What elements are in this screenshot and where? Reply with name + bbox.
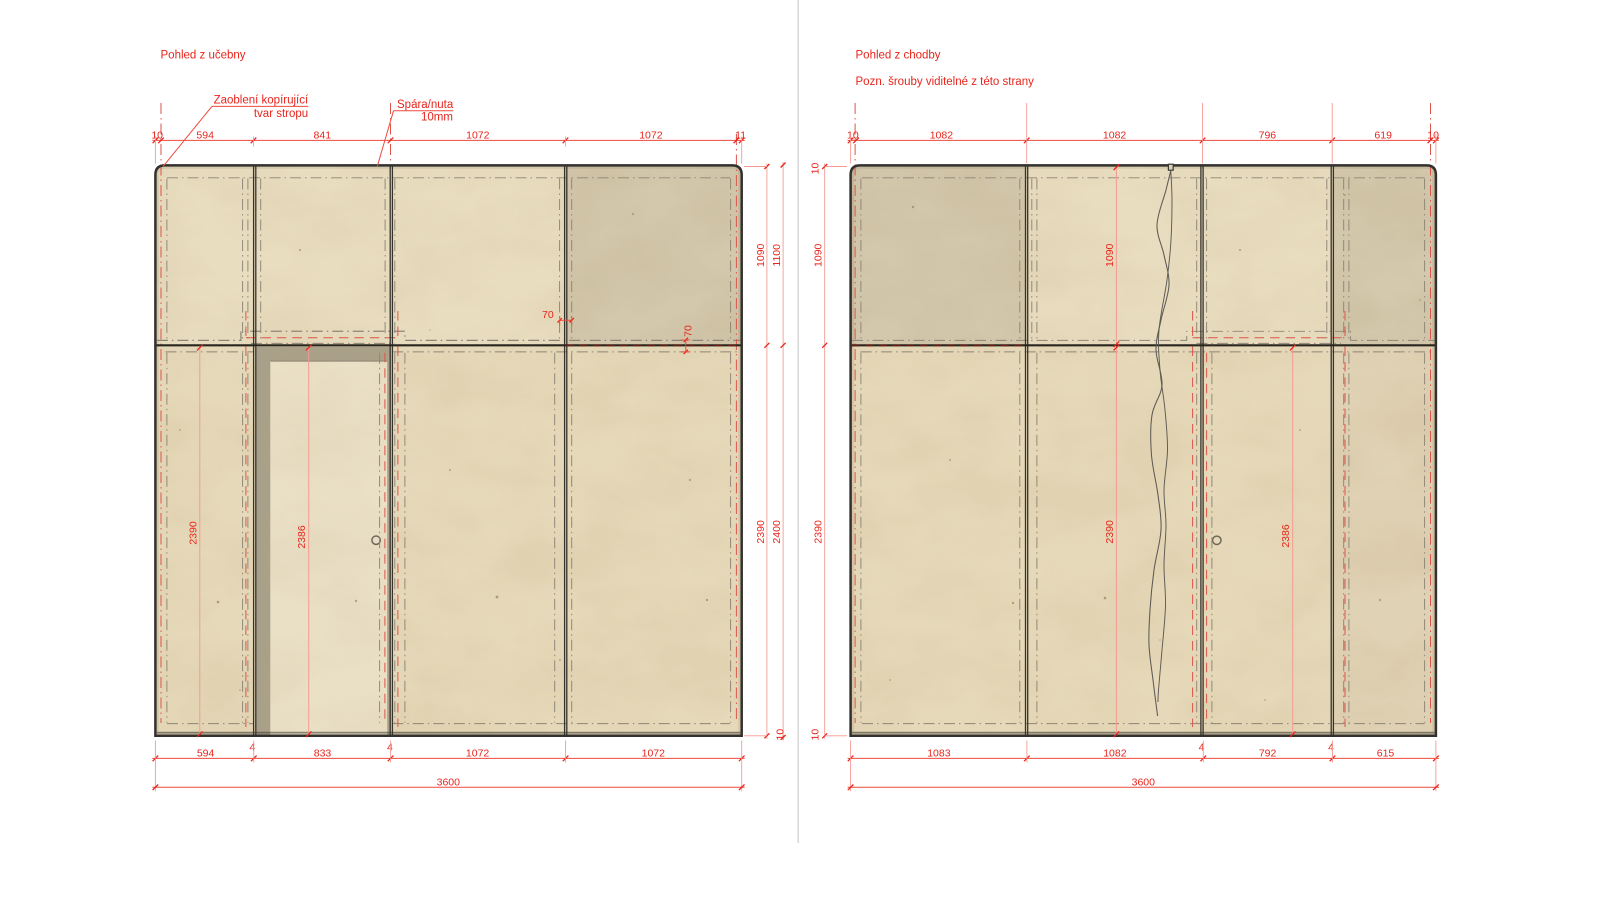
svg-text:1072: 1072: [466, 748, 490, 760]
svg-text:Pohled z učebny: Pohled z učebny: [161, 50, 246, 62]
svg-text:10: 10: [810, 729, 822, 741]
svg-text:2390: 2390: [187, 521, 199, 545]
svg-text:2386: 2386: [296, 525, 308, 549]
svg-text:70: 70: [683, 325, 695, 337]
svg-text:70: 70: [542, 309, 554, 321]
svg-text:1090: 1090: [813, 243, 825, 267]
svg-text:10: 10: [774, 729, 786, 741]
svg-text:2390: 2390: [1104, 520, 1116, 544]
svg-text:Pozn. šrouby viditelné z této: Pozn. šrouby viditelné z této strany: [856, 76, 1035, 88]
svg-text:1082: 1082: [1103, 130, 1127, 142]
svg-text:1072: 1072: [639, 130, 663, 142]
svg-text:2400: 2400: [771, 520, 783, 544]
svg-text:10: 10: [847, 130, 859, 142]
svg-text:3600: 3600: [1132, 777, 1156, 789]
svg-text:1100: 1100: [771, 244, 783, 267]
svg-text:10mm: 10mm: [421, 112, 453, 124]
svg-text:594: 594: [197, 748, 215, 760]
svg-text:tvar stropu: tvar stropu: [254, 108, 308, 120]
svg-text:1072: 1072: [466, 130, 490, 142]
svg-text:Spára/nuta: Spára/nuta: [397, 99, 454, 111]
svg-text:1082: 1082: [930, 130, 954, 142]
svg-text:4: 4: [1328, 742, 1334, 754]
svg-text:594: 594: [196, 130, 214, 142]
svg-text:2390: 2390: [813, 520, 825, 544]
svg-text:10: 10: [810, 163, 822, 175]
svg-text:1090: 1090: [1104, 243, 1116, 267]
svg-text:796: 796: [1259, 130, 1277, 142]
svg-text:Zaoblení kopírující: Zaoblení kopírující: [214, 95, 309, 107]
svg-text:833: 833: [314, 748, 332, 760]
svg-text:619: 619: [1374, 130, 1392, 142]
svg-text:10: 10: [151, 130, 163, 142]
svg-text:4: 4: [387, 742, 393, 754]
svg-text:841: 841: [314, 130, 332, 142]
svg-text:615: 615: [1377, 748, 1395, 760]
svg-text:11: 11: [735, 130, 746, 142]
svg-text:Pohled z chodby: Pohled z chodby: [856, 50, 941, 62]
svg-text:2386: 2386: [1280, 524, 1292, 548]
svg-text:1072: 1072: [642, 748, 666, 760]
svg-text:1083: 1083: [927, 748, 951, 760]
svg-text:2390: 2390: [755, 520, 767, 544]
svg-text:792: 792: [1259, 748, 1277, 760]
svg-text:10: 10: [1427, 130, 1439, 142]
svg-text:1090: 1090: [755, 243, 767, 267]
svg-text:1082: 1082: [1103, 748, 1127, 760]
svg-text:3600: 3600: [437, 777, 461, 789]
svg-text:4: 4: [249, 742, 255, 754]
